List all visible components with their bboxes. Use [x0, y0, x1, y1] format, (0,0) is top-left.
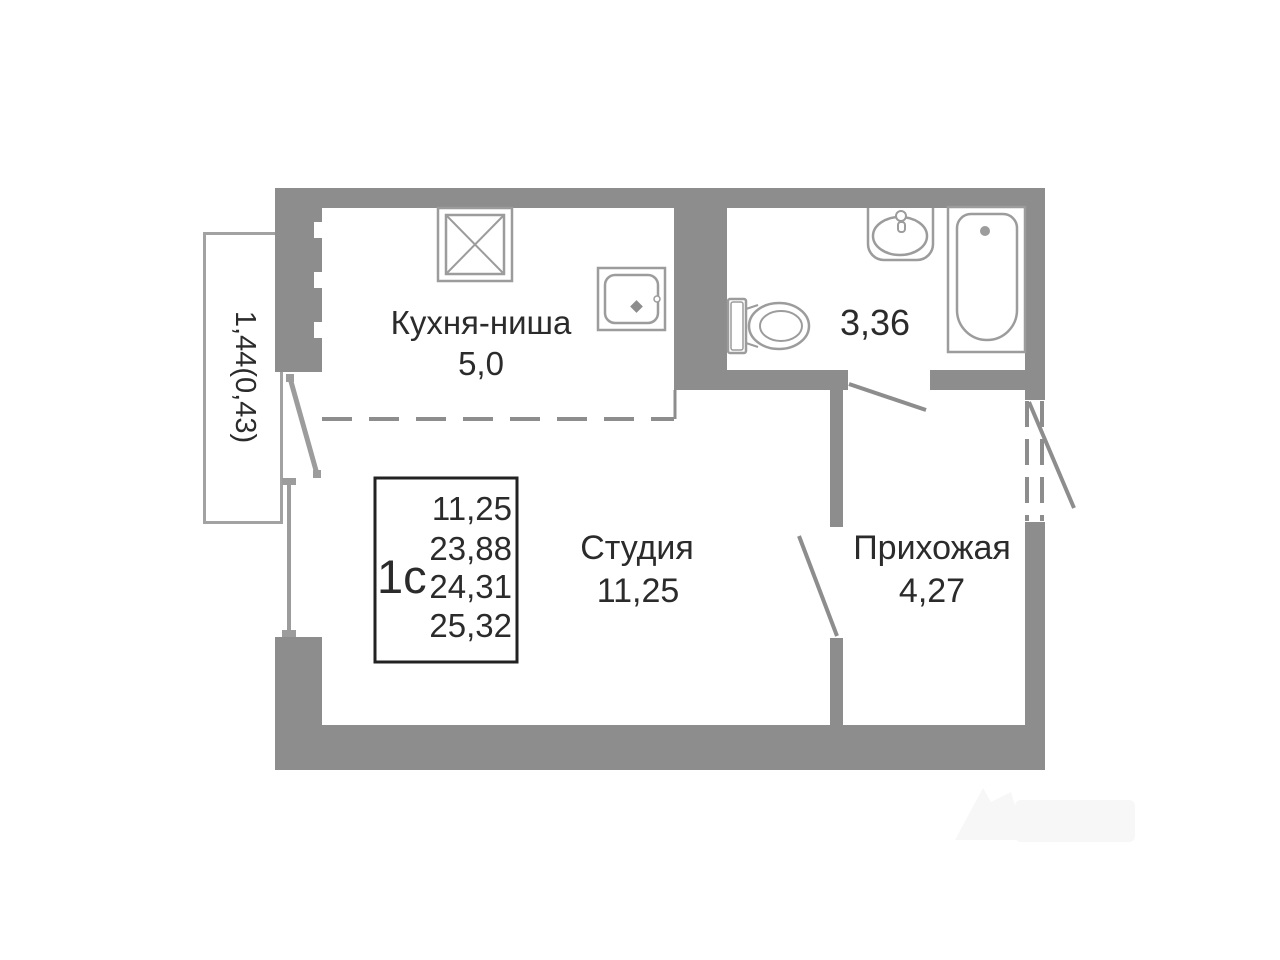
- kitchen-sink-icon: [598, 268, 665, 330]
- unit-value-3: 24,31: [429, 568, 512, 605]
- washbasin-tap-stem: [898, 222, 905, 232]
- hallway-area: 4,27: [899, 572, 965, 610]
- studio-area: 11,25: [597, 572, 680, 610]
- watermark-logo: [955, 788, 1025, 840]
- bathroom-area: 3,36: [840, 302, 910, 343]
- studio-door-leaf: [799, 536, 837, 636]
- washbasin-icon: [868, 208, 933, 260]
- unit-info-box: 1с 11,25 23,88 24,31 25,32: [375, 478, 517, 662]
- window-cap-bottom: [282, 630, 296, 637]
- unit-value-1: 11,25: [432, 490, 512, 527]
- balcony-door-hinge: [286, 374, 294, 382]
- bathtub-icon: [948, 207, 1025, 352]
- wall-right-upper: [1025, 188, 1045, 400]
- watermark: [955, 788, 1135, 842]
- wall-bottom: [275, 725, 1045, 770]
- balcony-door-end: [313, 470, 321, 478]
- balcony-door-leaf: [290, 378, 317, 474]
- kitchen-sink-basin: [605, 275, 658, 323]
- wall-tick: [314, 272, 323, 288]
- wall-bathroom-bottom-right: [930, 370, 1025, 390]
- wall-top: [275, 188, 1045, 208]
- toilet-icon: [728, 299, 809, 353]
- wall-kitchen-bathroom: [674, 208, 727, 390]
- toilet-connector: [746, 343, 758, 347]
- entrance-door: [1027, 401, 1074, 521]
- wall-right-lower: [1025, 522, 1045, 770]
- kitchen-area: 5,0: [458, 345, 504, 382]
- kitchen-label: Кухня-ниша: [391, 304, 572, 341]
- balcony-area-label: 1,44(0,43): [229, 311, 261, 443]
- toilet-bowl-inner: [760, 311, 802, 341]
- wall-tick: [314, 322, 323, 338]
- wall-tick: [314, 222, 323, 238]
- wall-bathroom-bottom-left: [727, 370, 848, 390]
- floor-plan-drawing: 1,44(0,43): [0, 0, 1280, 960]
- unit-type: 1с: [377, 550, 427, 603]
- watermark-text-blob: [1015, 800, 1135, 842]
- toilet-tank-inner: [731, 302, 743, 350]
- vent-shaft-icon: [438, 208, 512, 281]
- window-cap-top: [282, 478, 296, 485]
- washbasin-tap: [896, 211, 906, 221]
- balcony-door-and-window: [282, 374, 321, 637]
- entrance-door-leaf: [1029, 402, 1074, 508]
- kitchen-boundary: [322, 390, 675, 419]
- wall-hallway-partition-upper: [830, 390, 843, 527]
- studio-label: Студия: [580, 529, 694, 567]
- balcony: 1,44(0,43): [205, 234, 282, 523]
- bathroom-door-leaf: [849, 384, 926, 410]
- kitchen-sink-tap: [654, 296, 660, 302]
- toilet-connector: [746, 305, 758, 309]
- unit-value-2: 23,88: [429, 530, 512, 567]
- bathtub-drain: [980, 226, 990, 236]
- floor-plan: 1,44(0,43): [0, 0, 1280, 960]
- wall-hallway-partition-lower: [830, 638, 843, 725]
- unit-value-4: 25,32: [429, 607, 512, 644]
- hallway-label: Прихожая: [853, 529, 1011, 567]
